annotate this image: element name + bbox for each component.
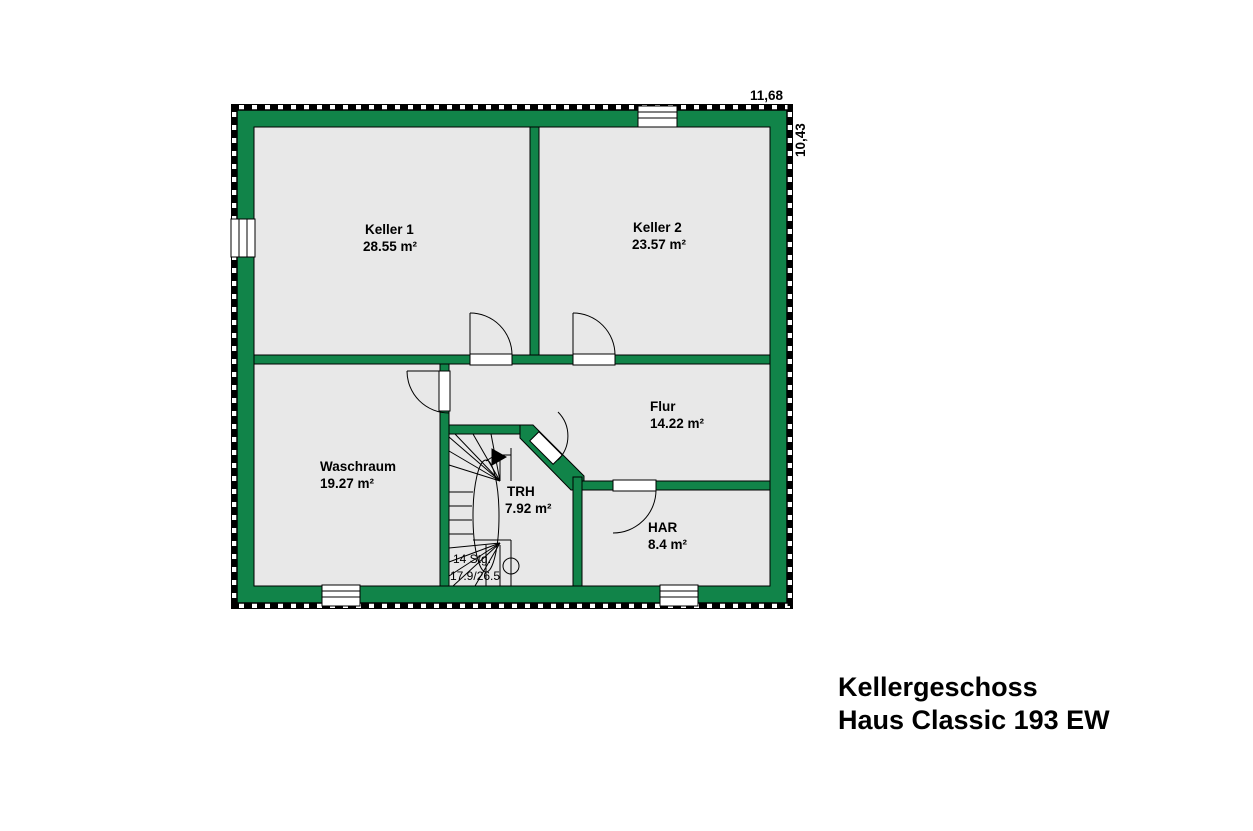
room-name-flur: Flur xyxy=(650,399,676,414)
plan-title-line2: Haus Classic 193 EW xyxy=(838,705,1110,735)
room-area-waschraum: 19.27 m² xyxy=(320,476,375,491)
room-name-keller1: Keller 1 xyxy=(365,222,414,237)
wall-har-top xyxy=(582,481,770,490)
window-left xyxy=(231,219,255,257)
window-top xyxy=(638,106,677,127)
room-area-har: 8.4 m² xyxy=(648,537,688,552)
opening-keller1 xyxy=(470,354,512,365)
stair-note-line1: 14 Stg. xyxy=(453,552,491,566)
room-name-trh: TRH xyxy=(507,484,535,499)
window-bottom-left xyxy=(322,585,360,606)
dimension-height: 10,43 xyxy=(793,123,808,157)
stair-note-line2: 17.9/26.5 xyxy=(450,569,500,583)
room-area-flur: 14.22 m² xyxy=(650,416,705,431)
opening-waschraum xyxy=(439,371,450,411)
window-bottom-right xyxy=(660,585,698,606)
room-area-keller2: 23.57 m² xyxy=(632,237,687,252)
room-name-har: HAR xyxy=(648,520,677,535)
room-area-keller1: 28.55 m² xyxy=(363,239,418,254)
opening-har xyxy=(613,480,656,491)
room-name-waschraum: Waschraum xyxy=(320,459,396,474)
opening-keller2 xyxy=(573,354,615,365)
plan-title-line1: Kellergeschoss xyxy=(838,672,1038,702)
floor-plan-drawing: Keller 1 28.55 m² Keller 2 23.57 m² Flur… xyxy=(0,0,1253,831)
wall-trh-top xyxy=(449,425,525,434)
wall-keller1-keller2 xyxy=(530,127,539,364)
room-area-trh: 7.92 m² xyxy=(505,501,552,516)
dimension-width: 11,68 xyxy=(750,88,784,103)
wall-har-left xyxy=(573,477,582,586)
floor-plan-page: Keller 1 28.55 m² Keller 2 23.57 m² Flur… xyxy=(0,0,1253,831)
room-name-keller2: Keller 2 xyxy=(633,220,682,235)
